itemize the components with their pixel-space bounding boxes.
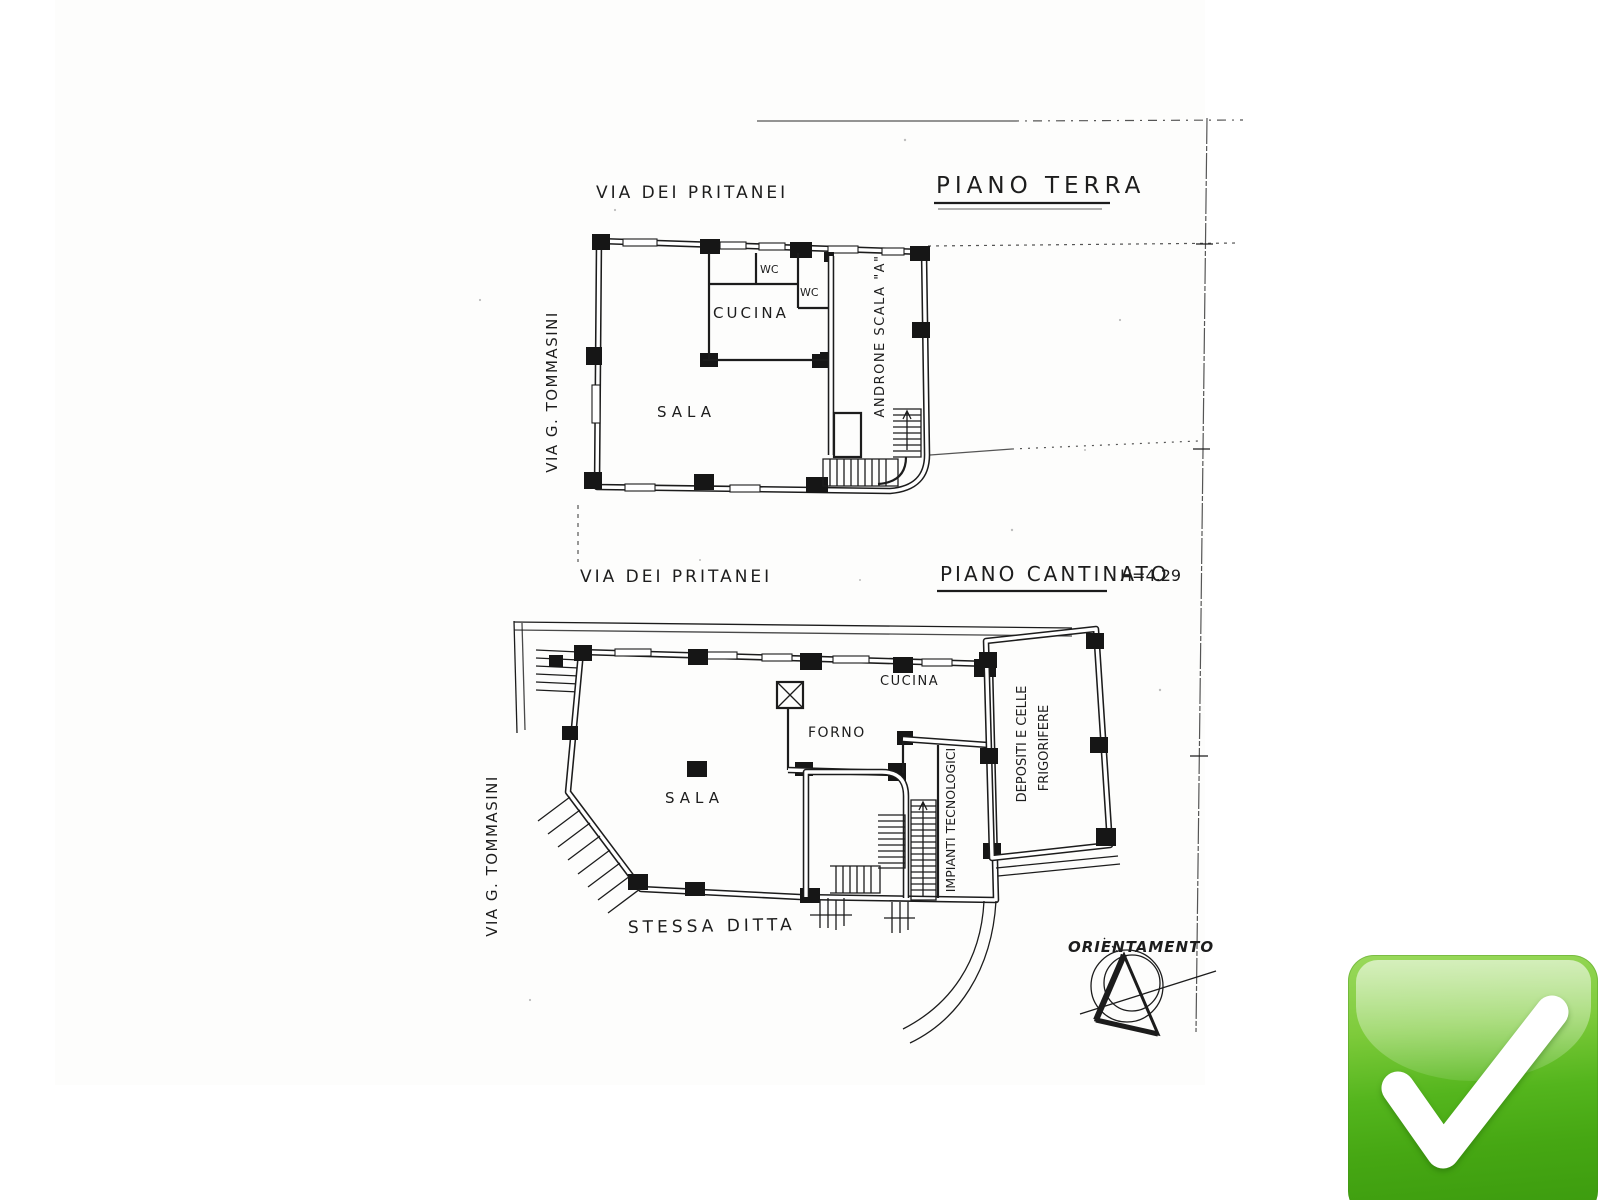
ground-street-top-label: VIA DEI PRITANEI (596, 183, 788, 203)
ground-room-kitchen-label: CUCINA (713, 304, 789, 322)
checkmark-icon (1348, 955, 1598, 1200)
ground-room-hall-label: SALA (657, 403, 716, 421)
scanned-floor-plan-page: VIA DEI PRITANEI PIANO TERRA VIA G. TOMM… (0, 0, 1600, 1200)
ground-room-stairhall-label: ANDRONE SCALA "A" (873, 254, 888, 417)
basement-adjacent-note: STESSA DITTA (628, 915, 796, 938)
ground-room-wc1-label: WC (760, 263, 779, 276)
ground-street-left-label: VIA G. TOMMASINI (543, 311, 561, 473)
basement-room-oven-label: FORNO (808, 725, 866, 741)
basement-room-kitchen-label: CUCINA (880, 674, 939, 689)
basement-room-hall-label: SALA (665, 789, 724, 807)
basement-room-technical-label: IMPIANTI TECNOLOGICI (943, 748, 958, 893)
ground-title: PIANO TERRA (936, 173, 1145, 199)
basement-height-note: H=4.29 (1120, 566, 1181, 585)
basement-room-coldstorage-label1: DEPOSITI E CELLE (1015, 686, 1030, 803)
ground-room-wc2-label: WC (800, 286, 819, 299)
basement-street-top-label: VIA DEI PRITANEI (580, 567, 772, 587)
basement-room-coldstorage-label2: FRIGORIFERE (1037, 705, 1052, 791)
approved-badge (1348, 955, 1598, 1200)
basement-street-left-label: VIA G. TOMMASINI (483, 775, 501, 937)
